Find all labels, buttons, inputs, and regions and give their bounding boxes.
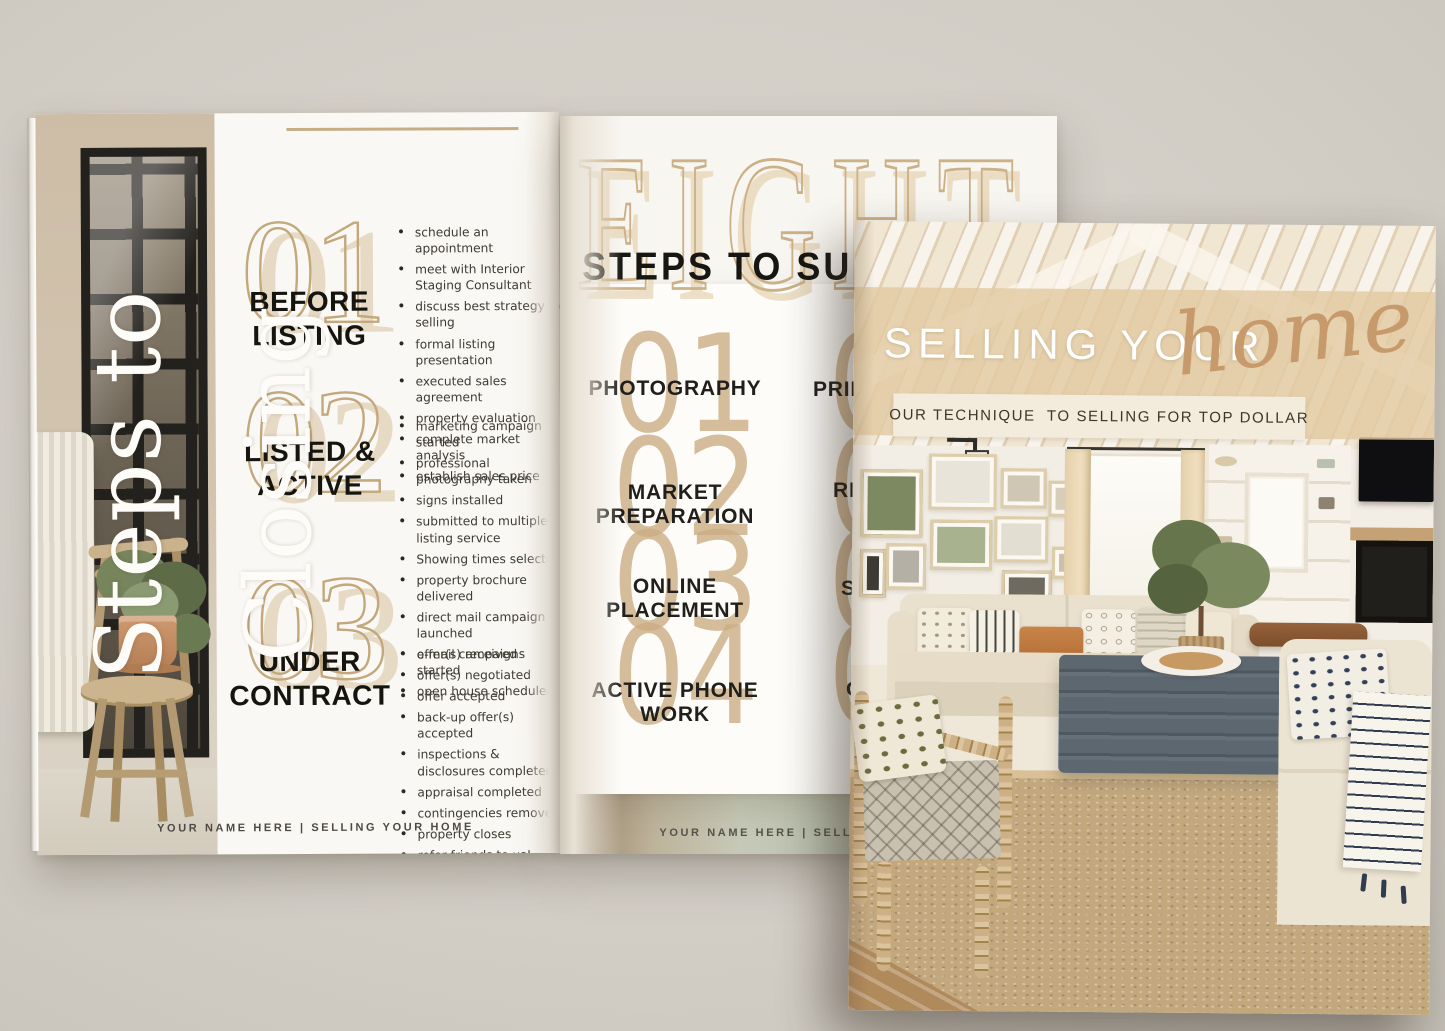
bullet-item: Showing times selected <box>396 550 561 567</box>
cover-page: SELLING YOUR home OUR TECHNIQUE TO SELLI… <box>848 221 1436 1015</box>
bullet-item: back-up offer(s) accepted <box>397 709 562 742</box>
vertical-title: Steps to Closing <box>52 139 207 830</box>
bullet-item: formal listing presentation <box>395 335 561 368</box>
striped-throw <box>1343 691 1432 871</box>
gallery-frame-landscape <box>930 520 992 571</box>
shelf-object <box>1319 497 1335 509</box>
shelf-object <box>1215 456 1237 466</box>
spindle-chair-leg <box>974 866 989 978</box>
cover-tagline: OUR TECHNIQUE TO SELLING FOR TOP DOLLAR <box>889 406 1309 427</box>
throw-tassel <box>1381 880 1387 898</box>
shelf-object <box>1317 459 1335 468</box>
bullet-item: property brochure delivered <box>396 572 561 605</box>
cover-tagline-bar: OUR TECHNIQUE TO SELLING FOR TOP DOLLAR <box>893 393 1305 440</box>
bullet-item: contingencies removed <box>397 805 561 822</box>
gallery-frame <box>994 516 1048 562</box>
bullet-item: marketing campaign started <box>396 418 562 451</box>
gallery-frame-bw <box>886 543 926 589</box>
gallery-frame <box>1000 468 1046 508</box>
leopard-print-pillow <box>850 694 947 783</box>
bullet-item: discuss best strategy for selling <box>395 298 561 331</box>
fireplace-mantel <box>1350 527 1433 541</box>
bullet-item: submitted to multiple listing service <box>396 513 561 546</box>
fireplace <box>1356 540 1434 623</box>
brochure-mockup-scene: Steps to Closing 01 01 BEFORE LISTING sc… <box>0 0 1445 1031</box>
bullet-item: schedule an appointment <box>395 224 562 257</box>
left-page: Steps to Closing 01 01 BEFORE LISTING sc… <box>34 112 561 855</box>
tv-screen <box>1359 437 1435 502</box>
spindle-chair-leg <box>876 861 891 971</box>
bullet-item: offer(s) received <box>397 646 562 663</box>
top-rule <box>286 127 518 131</box>
bullet-item: signs installed <box>396 492 562 509</box>
headline-steps-to-success: STEPS TO SU <box>582 244 852 289</box>
bullet-item: meet with Interior Staging Consultant <box>395 261 562 294</box>
step-label: PHOTOGRAPHY <box>568 377 782 401</box>
bullet-item: executed sales agreement <box>396 373 562 406</box>
gallery-frame <box>928 454 996 511</box>
tray-board <box>1159 652 1223 671</box>
bullet-item: refer friends to us! <box>398 847 562 855</box>
bullet-item: appraisal completed <box>397 783 561 800</box>
gallery-frame-green-art <box>860 469 923 538</box>
bullet-item: inspections & disclosures completed <box>397 746 561 779</box>
bullet-item: offer accepted <box>397 688 562 705</box>
gallery-frame-dark <box>860 549 886 597</box>
step-label: ACTIVE PHONE WORK <box>568 679 782 727</box>
bullet-item: offer(s) negotiated <box>397 667 562 684</box>
bullet-item: direct mail campaign launched <box>397 609 562 642</box>
throw-tassel <box>1401 886 1407 904</box>
bullet-item: professional photography taken <box>396 455 562 488</box>
